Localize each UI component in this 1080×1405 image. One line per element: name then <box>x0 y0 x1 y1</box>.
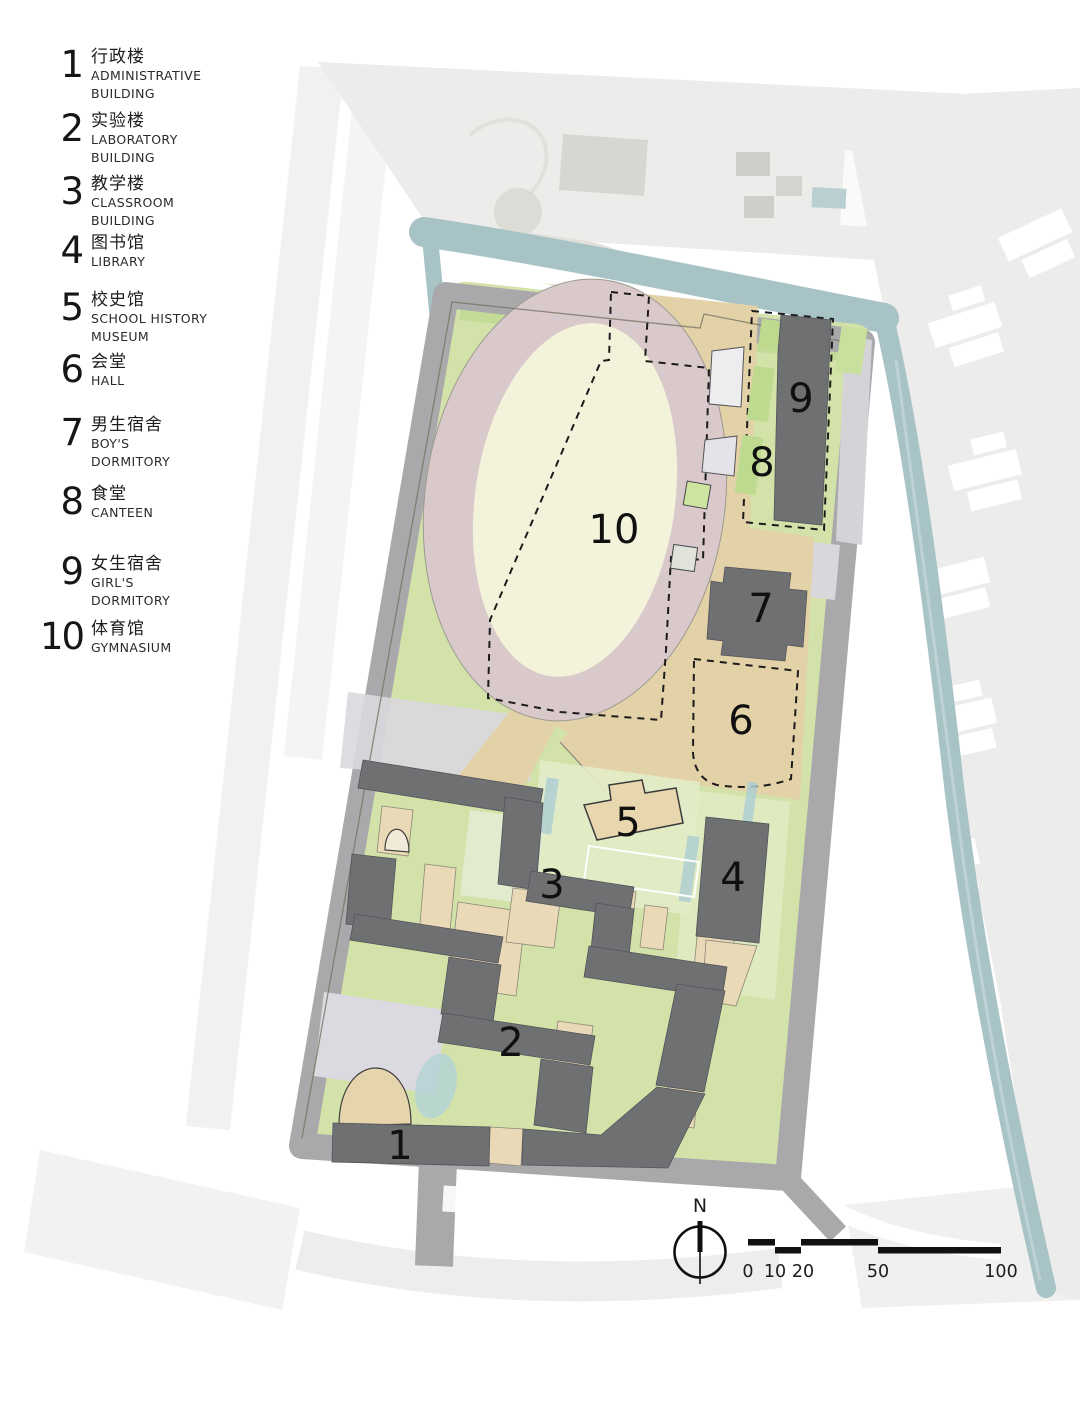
legend-en: BUILDING <box>91 150 178 166</box>
legend-item-library: 4 图书馆LIBRARY <box>40 232 145 271</box>
crosswalk <box>442 1186 461 1213</box>
legend-en: LABORATORY <box>91 132 178 148</box>
plan-label-10: 10 <box>589 507 640 553</box>
context-pool <box>811 187 846 209</box>
legend-number: 5 <box>40 289 82 345</box>
legend-en: GYMNASIUM <box>91 640 172 656</box>
north-label: N <box>693 1195 707 1217</box>
legend-item-boys-dormitory: 7 男生宿舍BOY'SDORMITORY <box>40 414 170 470</box>
scale-tick-20: 20 <box>792 1262 814 1282</box>
legend-zh: 体育馆 <box>91 619 172 639</box>
plan-label-5: 5 <box>615 800 640 846</box>
legend-zh: 男生宿舍 <box>91 415 170 435</box>
plan-label-6: 6 <box>728 698 753 744</box>
legend-en: LIBRARY <box>91 254 145 270</box>
legend-number: 3 <box>40 173 82 229</box>
plan-label-1: 1 <box>387 1123 412 1169</box>
legend-zh: 图书馆 <box>91 233 145 253</box>
legend-number: 8 <box>40 483 82 522</box>
legend-zh: 实验楼 <box>91 111 178 131</box>
legend-en: BUILDING <box>91 86 201 102</box>
legend-en: DORMITORY <box>91 593 170 609</box>
legend-item-classroom-building: 3 教学楼CLASSROOMBUILDING <box>40 173 174 229</box>
plan-label-3: 3 <box>539 862 564 908</box>
legend-item-girls-dormitory: 9 女生宿舍GIRL'SDORMITORY <box>40 553 170 609</box>
legend-item-canteen: 8 食堂CANTEEN <box>40 483 153 522</box>
south-driveway <box>434 1160 438 1266</box>
legend-zh: 教学楼 <box>91 174 174 194</box>
legend-en: BOY'S <box>91 436 170 452</box>
scale-tick-100: 100 <box>984 1262 1017 1282</box>
legend-en: CANTEEN <box>91 505 153 521</box>
legend-number: 4 <box>40 232 82 271</box>
legend-en: ADMINISTRATIVE <box>91 68 201 84</box>
legend-en: HALL <box>91 373 127 389</box>
legend-number: 6 <box>40 351 82 390</box>
plan-label-8: 8 <box>749 440 774 486</box>
plan-label-7: 7 <box>748 586 773 632</box>
legend-number: 10 <box>40 618 82 657</box>
legend-en: BUILDING <box>91 213 174 229</box>
site-plan-page: 1 2 3 4 5 6 7 8 9 10 N 0 10 20 50 100 1 … <box>0 0 1080 1405</box>
legend-en: DORMITORY <box>91 454 170 470</box>
plan-label-4: 4 <box>720 855 745 901</box>
legend-item-hall: 6 会堂HALL <box>40 351 127 390</box>
scale-tick-50: 50 <box>867 1262 889 1282</box>
legend-zh: 会堂 <box>91 352 127 372</box>
plan-label-2: 2 <box>498 1020 523 1066</box>
legend-en: GIRL'S <box>91 575 170 591</box>
legend-number: 1 <box>40 46 82 102</box>
legend-item-laboratory-building: 2 实验楼LABORATORYBUILDING <box>40 110 178 166</box>
legend-number: 9 <box>40 553 82 609</box>
legend-zh: 行政楼 <box>91 47 201 67</box>
legend-zh: 食堂 <box>91 484 153 504</box>
legend-number: 7 <box>40 414 82 470</box>
legend-en: MUSEUM <box>91 329 207 345</box>
legend-item-administrative-building: 1 行政楼ADMINISTRATIVEBUILDING <box>40 46 201 102</box>
scale-tick-10: 10 <box>764 1262 786 1282</box>
legend-zh: 校史馆 <box>91 290 207 310</box>
legend-zh: 女生宿舍 <box>91 554 170 574</box>
legend-number: 2 <box>40 110 82 166</box>
legend-en: SCHOOL HISTORY <box>91 311 207 327</box>
legend-en: CLASSROOM <box>91 195 174 211</box>
legend-item-school-history-museum: 5 校史馆SCHOOL HISTORYMUSEUM <box>40 289 207 345</box>
legend-item-gymnasium: 10 体育馆GYMNASIUM <box>40 618 172 657</box>
scale-tick-0: 0 <box>742 1262 753 1282</box>
legend: 1 行政楼ADMINISTRATIVEBUILDING 2 实验楼LABORAT… <box>40 0 275 700</box>
north-arrow-icon: N <box>675 1195 726 1284</box>
plan-label-9: 9 <box>788 376 813 422</box>
context-building-roof <box>559 134 648 196</box>
